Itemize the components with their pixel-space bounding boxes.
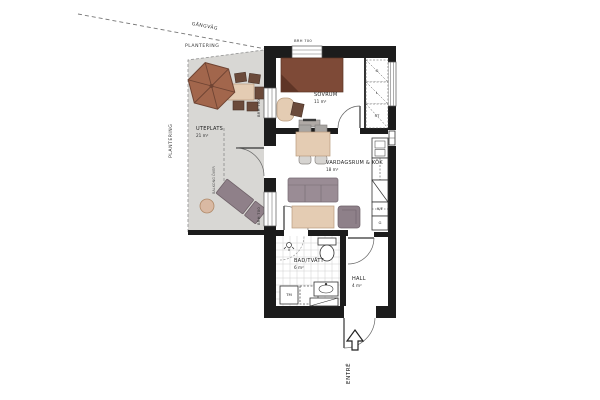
patio-area: 21 m² (196, 133, 223, 138)
hall-door (348, 238, 374, 264)
sill-height-bedroom-label: BRH 700 (257, 99, 262, 117)
planting-top-label: PLANTERING (185, 44, 219, 50)
bedroom-door (338, 106, 360, 128)
bedroom-top-window (292, 46, 322, 58)
sill-height-top-label: BRH 700 (294, 39, 312, 44)
closet-1-label: G (366, 68, 388, 73)
wardrobe-label: G (372, 220, 388, 225)
entry-label: ENTRÉ (346, 363, 353, 384)
coffee-table (292, 206, 334, 228)
hall-name: HALL (352, 276, 366, 283)
closet-3-label: ST (366, 113, 388, 118)
bathroom-sink (314, 282, 338, 296)
washer-label: TM (280, 292, 298, 297)
duct-shaft (389, 131, 395, 145)
bed (281, 58, 343, 92)
entry-arrow-icon (347, 330, 363, 350)
bath-label: BAD/TVÄTT 6 m² (294, 258, 324, 270)
patio-screen-wall (188, 230, 268, 235)
bedroom-area: 11 m² (314, 99, 337, 104)
planting-left-label: PLANTERING (169, 124, 175, 158)
right-wall-window (388, 62, 396, 106)
kitchen-sink-unit (372, 138, 388, 158)
living-area: 18 m² (326, 167, 383, 172)
hall-area: 4 m² (352, 283, 366, 288)
sofa (288, 178, 338, 202)
closet-2-label: L (366, 90, 388, 95)
floor-plan-page: GÅNGVÄG PLANTERING PLANTERING UTEPLATS 2… (0, 0, 600, 400)
bathroom-bench (310, 298, 338, 306)
bedroom-desk (277, 98, 304, 121)
floor-plan-drawing (0, 0, 600, 400)
walkway-dashed-line (78, 14, 266, 49)
balcony-above-note: BALKONG ÖVER (212, 166, 217, 194)
hall-label: HALL 4 m² (352, 276, 366, 288)
stove (372, 180, 388, 202)
entrance-door (344, 318, 375, 348)
shower-symbol (280, 236, 304, 260)
kitchen-units (372, 138, 388, 230)
bedroom-label: SOVRUM 11 m² (314, 92, 337, 104)
living-name: VARDAGSRUM & KÖK (326, 160, 383, 167)
bath-name: BAD/TVÄTT (294, 258, 324, 265)
bedroom-left-window (264, 88, 276, 118)
patio-name: UTEPLATS (196, 126, 223, 133)
sill-height-living-label: BRH 700 (257, 207, 262, 225)
bath-area: 6 m² (294, 265, 324, 270)
patio-label: UTEPLATS 21 m² (196, 126, 223, 138)
plant-pot (200, 199, 214, 213)
fridge-freezer-label: K/F (372, 206, 388, 211)
living-left-window (264, 192, 276, 226)
armchair (338, 206, 360, 228)
bedroom-name: SOVRUM (314, 92, 337, 99)
living-label: VARDAGSRUM & KÖK 18 m² (326, 160, 383, 172)
